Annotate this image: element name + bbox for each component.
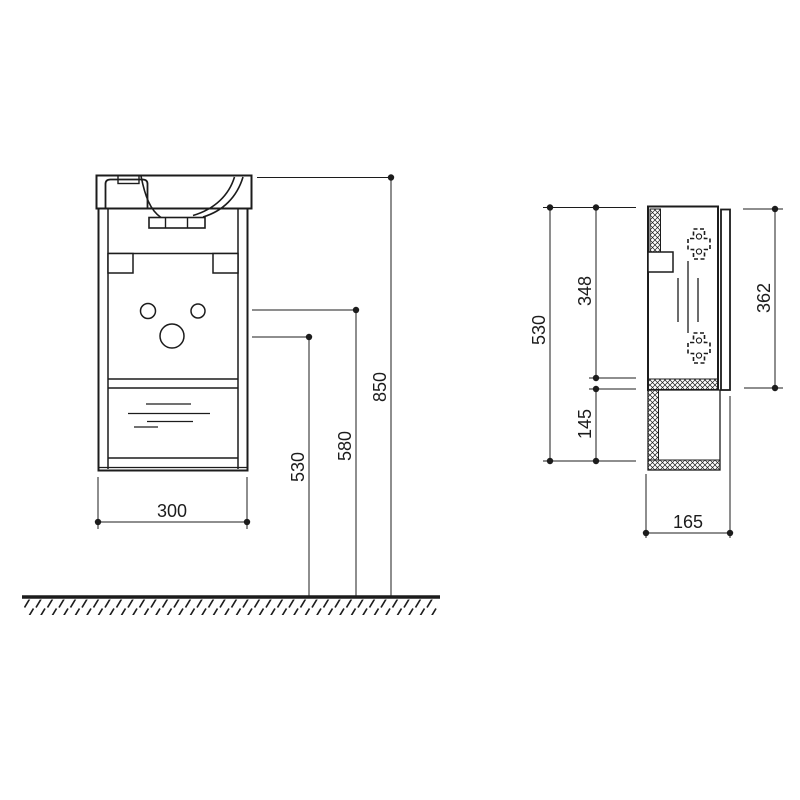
dim-dot — [727, 530, 733, 536]
dim-dot — [593, 204, 599, 210]
dim-label-348: 348 — [575, 276, 595, 306]
side-cabinet-body — [648, 207, 730, 391]
mounting-bracket-right — [213, 254, 238, 274]
supply-hole-left — [141, 304, 156, 319]
dim-dot — [547, 458, 553, 464]
vanity-technical-drawing: 300 850 580 530 — [0, 0, 800, 800]
dimension-530-side: 530 — [529, 204, 553, 464]
front-dimensions: 300 850 580 530 — [95, 174, 394, 596]
dim-label-530-side: 530 — [529, 315, 549, 345]
dim-label-530-front: 530 — [288, 452, 308, 482]
dim-dot — [593, 458, 599, 464]
dim-label-362: 362 — [754, 283, 774, 313]
dimension-530-front: 530 — [252, 334, 312, 596]
side-view: 530 348 145 362 — [529, 204, 783, 538]
dim-label-145: 145 — [575, 409, 595, 439]
dim-dot — [388, 174, 394, 180]
dimension-300: 300 — [95, 477, 250, 529]
dim-label-300: 300 — [157, 501, 187, 521]
supply-hole-right — [191, 304, 205, 318]
wall-rail-section — [650, 209, 661, 252]
washbasin-section — [97, 176, 252, 229]
dim-dot — [306, 334, 312, 340]
dim-dot — [547, 204, 553, 210]
drain-hole — [160, 324, 184, 348]
dim-label-580: 580 — [335, 431, 355, 461]
lower-shelf-unit — [648, 390, 720, 470]
cabinet-outline — [99, 209, 248, 471]
drain-strip — [149, 218, 205, 229]
dimension-850: 850 — [257, 174, 394, 596]
dim-label-850: 850 — [370, 372, 390, 402]
dimension-348: 348 — [575, 204, 599, 381]
dim-dot — [593, 386, 599, 392]
cabinet-body — [99, 209, 248, 471]
dim-dot — [593, 375, 599, 381]
dim-dot — [772, 206, 778, 212]
lower-left-panel-section — [648, 390, 659, 460]
lower-bottom-panel-section — [648, 460, 720, 470]
ground — [22, 597, 440, 615]
dim-dot — [244, 519, 250, 525]
dimension-580: 580 — [252, 307, 359, 596]
dim-dot — [772, 385, 778, 391]
bottom-panel-section — [648, 379, 718, 390]
glass-shelf-lines — [128, 404, 210, 427]
mounting-bracket-left — [108, 254, 133, 274]
door-panel — [721, 210, 730, 391]
dim-label-165: 165 — [673, 512, 703, 532]
dimension-362: 362 — [743, 206, 783, 391]
ground-hatch — [24, 600, 438, 616]
dim-dot — [95, 519, 101, 525]
mounting-bracket-side — [648, 252, 673, 272]
front-view: 300 850 580 530 — [22, 174, 440, 615]
dim-dot — [353, 307, 359, 313]
technical-drawing-page: 300 850 580 530 — [0, 0, 800, 800]
dim-dot — [643, 530, 649, 536]
dimension-145: 145 — [575, 386, 599, 464]
